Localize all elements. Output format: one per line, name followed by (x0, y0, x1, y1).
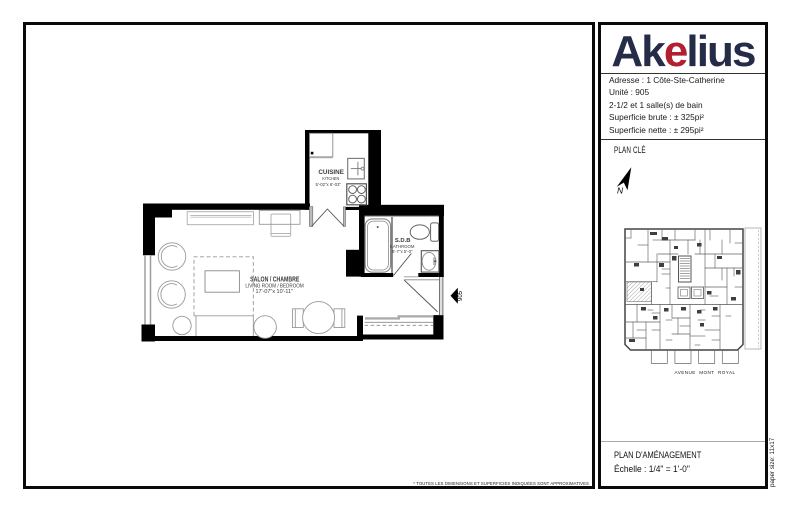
svg-text:KITCHEN: KITCHEN (322, 176, 339, 182)
svg-text:905: 905 (458, 290, 464, 301)
svg-text:S.D.B: S.D.B (395, 238, 411, 244)
svg-text:5'-02"x 6'-03": 5'-02"x 6'-03" (316, 182, 342, 188)
svg-text:N: N (617, 186, 624, 196)
svg-text:SALON / CHAMBRE: SALON / CHAMBRE (250, 274, 299, 283)
svg-text:BATHROOM: BATHROOM (390, 244, 414, 250)
svg-text:CUISINE: CUISINE (318, 169, 344, 176)
svg-text:17'-07"x 10'-11": 17'-07"x 10'-11" (256, 289, 294, 295)
svg-text:6'-7"x 5'-0": 6'-7"x 5'-0" (392, 249, 413, 255)
